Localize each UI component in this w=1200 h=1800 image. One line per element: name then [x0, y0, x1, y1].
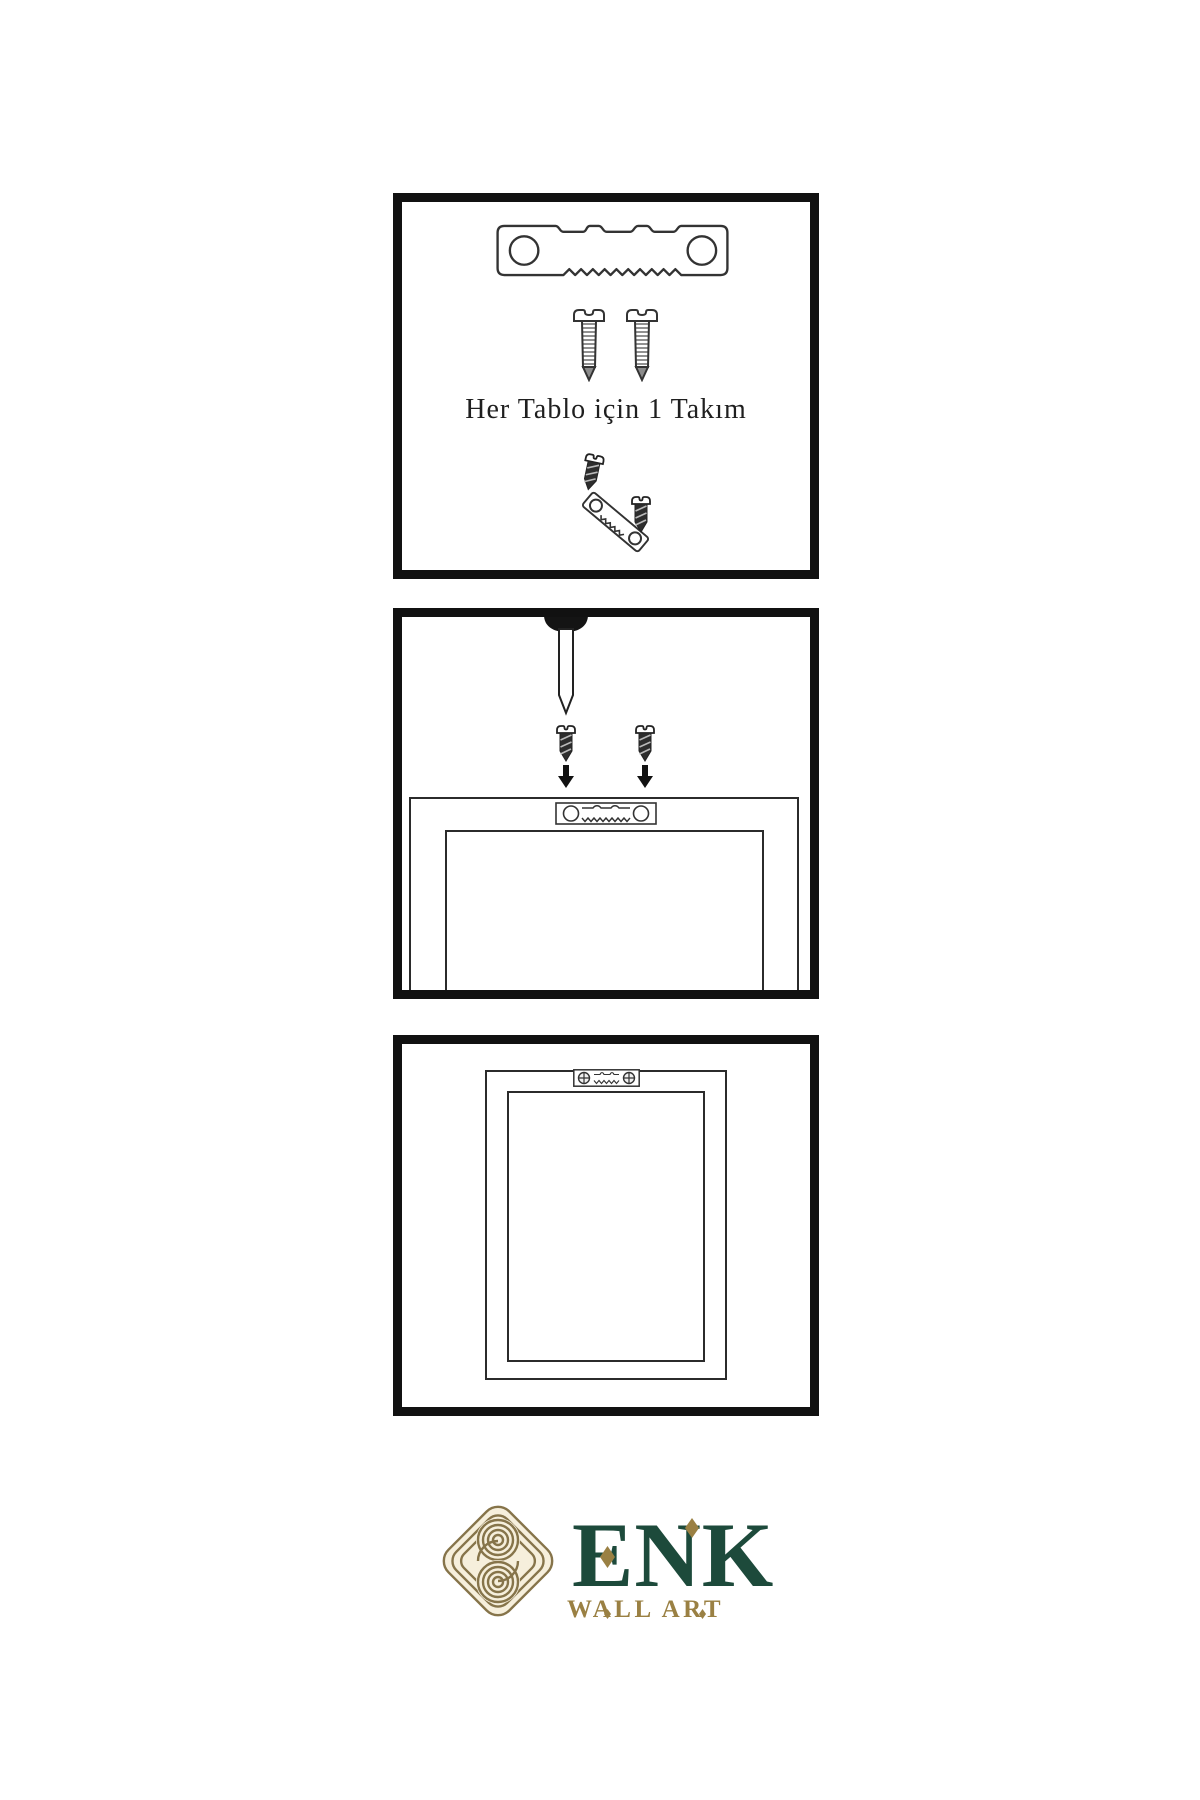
- knot-logo-icon: [437, 1498, 559, 1624]
- sawtooth-hanger-icon: [493, 223, 732, 278]
- instruction-sheet: Her Tablo için 1 Takım: [0, 0, 1200, 1800]
- nail-icon: [543, 617, 589, 717]
- dark-screw-icon: [577, 450, 607, 494]
- step-1-panel: Her Tablo için 1 Takım: [393, 193, 819, 579]
- brand-tagline: WALL ART: [567, 1597, 724, 1622]
- arrow-down-icon: [636, 765, 654, 789]
- dark-screw-icon: [630, 494, 652, 534]
- dark-screw-icon: [634, 723, 656, 763]
- step-2-panel: [393, 608, 819, 999]
- picture-frame-inner: [445, 830, 764, 990]
- arrow-down-icon: [557, 765, 575, 789]
- step-3-content: [402, 1044, 810, 1407]
- hanger-plate-icon: [555, 802, 657, 825]
- step-2-content: [402, 617, 810, 990]
- screw-icon: [623, 306, 661, 382]
- dark-screw-icon: [555, 723, 577, 763]
- step-1-content: Her Tablo için 1 Takım: [402, 202, 810, 570]
- kit-caption: Her Tablo için 1 Takım: [402, 394, 810, 426]
- step-3-panel: [393, 1035, 819, 1416]
- screw-icon: [570, 306, 608, 382]
- picture-frame-inner: [507, 1091, 705, 1362]
- mounted-hanger-icon: [573, 1069, 640, 1087]
